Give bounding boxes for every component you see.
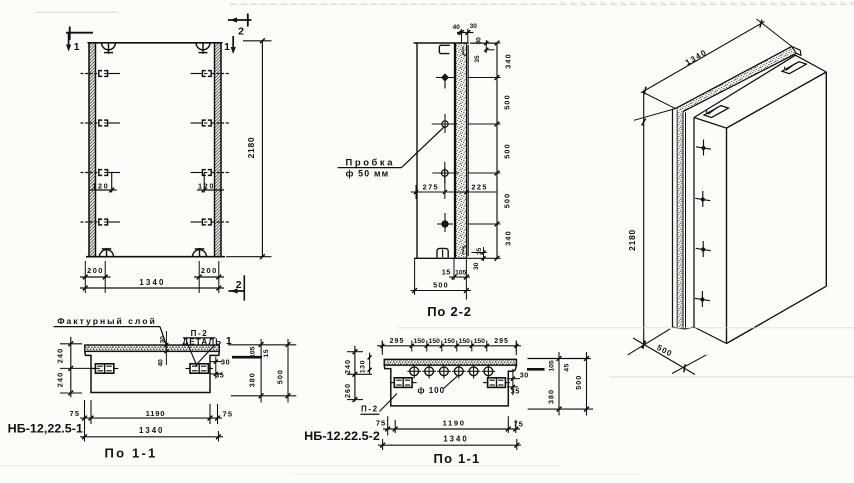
svg-text:ф 100: ф 100 <box>418 386 446 395</box>
svg-text:500: 500 <box>502 193 511 208</box>
svg-text:105: 105 <box>250 346 257 358</box>
svg-text:2180: 2180 <box>627 229 637 251</box>
svg-text:1190: 1190 <box>443 419 466 428</box>
svg-text:2: 2 <box>236 279 242 291</box>
svg-text:40: 40 <box>158 359 165 367</box>
svg-text:120: 120 <box>198 181 215 190</box>
svg-text:275: 275 <box>423 182 439 191</box>
svg-text:150: 150 <box>414 338 426 345</box>
svg-text:1340: 1340 <box>139 278 165 287</box>
svg-text:30: 30 <box>221 357 230 366</box>
svg-text:П-2: П-2 <box>361 405 379 414</box>
svg-text:500: 500 <box>574 375 583 390</box>
svg-text:НБ-12,22.5-1: НБ-12,22.5-1 <box>8 421 83 435</box>
svg-text:500: 500 <box>502 143 511 158</box>
svg-text:120: 120 <box>92 181 109 190</box>
svg-text:30: 30 <box>159 336 166 344</box>
svg-text:15: 15 <box>442 267 451 276</box>
svg-text:1: 1 <box>74 41 80 53</box>
svg-text:240: 240 <box>55 372 64 387</box>
svg-text:75: 75 <box>514 419 524 428</box>
svg-text:150: 150 <box>459 338 471 345</box>
svg-text:Пробка: Пробка <box>346 156 396 167</box>
svg-text:45: 45 <box>563 363 570 372</box>
svg-text:200: 200 <box>87 266 104 275</box>
svg-text:500: 500 <box>433 280 449 289</box>
svg-text:500: 500 <box>502 94 511 109</box>
svg-text:75: 75 <box>223 409 234 418</box>
svg-text:2: 2 <box>238 26 244 38</box>
svg-text:240: 240 <box>55 348 64 363</box>
svg-text:1340: 1340 <box>443 435 468 444</box>
svg-text:200: 200 <box>201 266 218 275</box>
svg-text:35: 35 <box>511 387 520 396</box>
svg-text:30: 30 <box>520 371 529 380</box>
svg-text:40: 40 <box>453 24 461 31</box>
svg-text:260: 260 <box>343 383 352 398</box>
svg-text:340: 340 <box>503 230 512 245</box>
svg-text:130: 130 <box>359 360 366 373</box>
svg-text:75: 75 <box>376 419 386 428</box>
svg-text:Фактурный слой: Фактурный слой <box>57 316 157 326</box>
svg-text:1340: 1340 <box>139 426 164 435</box>
svg-text:105: 105 <box>455 269 467 276</box>
svg-text:15: 15 <box>263 349 270 358</box>
svg-text:500: 500 <box>276 369 285 384</box>
svg-text:380: 380 <box>547 389 556 404</box>
svg-text:35: 35 <box>476 247 483 255</box>
svg-text:340: 340 <box>503 53 512 68</box>
svg-text:295: 295 <box>390 338 405 345</box>
svg-text:30: 30 <box>475 37 482 45</box>
svg-text:30: 30 <box>473 262 480 270</box>
svg-text:1: 1 <box>224 41 230 53</box>
svg-text:По 1-1: По 1-1 <box>105 445 158 460</box>
svg-text:150: 150 <box>474 338 486 345</box>
svg-text:295: 295 <box>494 338 509 345</box>
svg-text:30: 30 <box>470 23 478 30</box>
svg-text:240: 240 <box>343 359 352 374</box>
svg-text:150: 150 <box>444 338 456 345</box>
svg-text:1190: 1190 <box>146 409 166 418</box>
svg-text:2180: 2180 <box>246 137 256 159</box>
svg-text:105: 105 <box>549 360 556 372</box>
svg-text:150: 150 <box>429 338 441 345</box>
svg-text:По 2-2: По 2-2 <box>427 304 472 319</box>
svg-text:1: 1 <box>226 335 232 347</box>
svg-text:75: 75 <box>70 409 81 418</box>
svg-text:По 1-1: По 1-1 <box>434 451 481 466</box>
svg-text:НБ-12.22.5-2: НБ-12.22.5-2 <box>304 429 380 443</box>
svg-text:35: 35 <box>474 55 481 63</box>
svg-text:35: 35 <box>215 371 224 380</box>
svg-text:380: 380 <box>248 372 257 387</box>
svg-text:ф 50 мм: ф 50 мм <box>346 169 390 179</box>
svg-text:225: 225 <box>471 182 487 191</box>
